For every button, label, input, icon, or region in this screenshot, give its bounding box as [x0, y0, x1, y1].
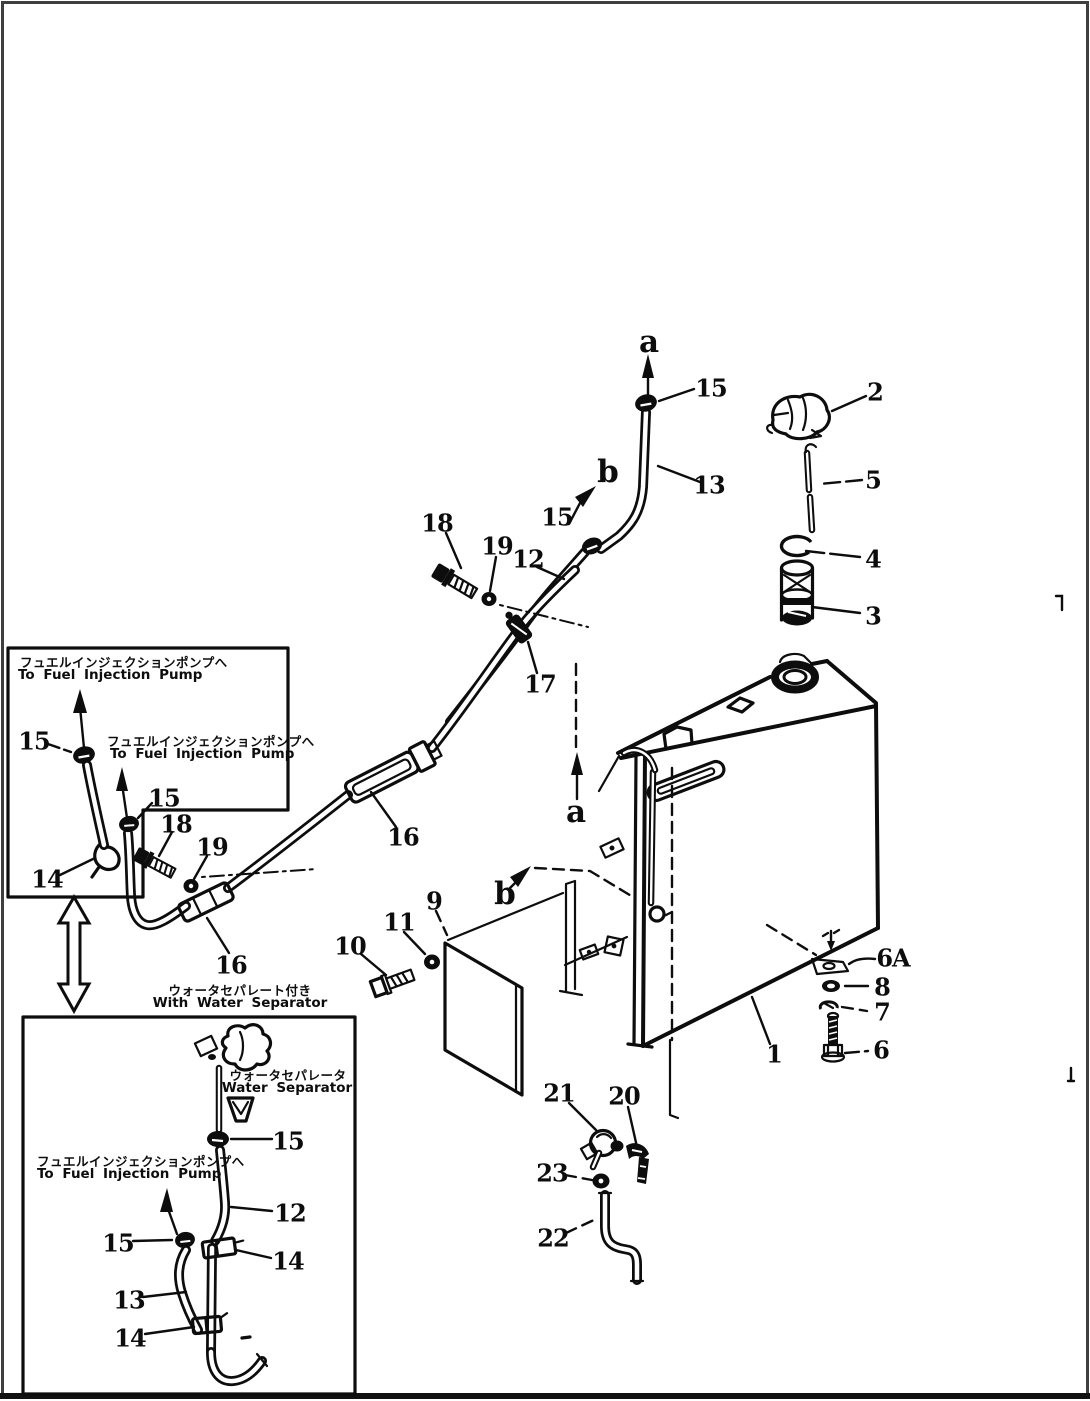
part-label-15: 15	[148, 784, 179, 813]
part-label-21: 21	[543, 1079, 574, 1108]
part-label-20: 20	[608, 1082, 639, 1111]
hose-16-upper	[343, 737, 444, 806]
note-to-pump-3-en: To Fuel Injection Pump	[37, 1166, 221, 1182]
bolt-18	[430, 562, 479, 602]
washer-8	[822, 980, 840, 992]
part-label-2: 2	[867, 378, 883, 407]
diagram-canvas	[0, 0, 1090, 1401]
elbow-14	[92, 845, 119, 877]
filler-cap-group	[767, 394, 829, 625]
part-label-4: 4	[865, 545, 881, 574]
part-label-23: 23	[536, 1159, 567, 1188]
part-label-19: 19	[196, 833, 227, 862]
drain-group	[581, 1131, 649, 1282]
part-label-15: 15	[541, 503, 572, 532]
part-label-22: 22	[537, 1224, 568, 1253]
part-label-13: 13	[693, 471, 724, 500]
gauge-rod	[806, 444, 816, 530]
fuel-tank	[565, 654, 878, 1118]
view-arrow-a-top	[642, 354, 654, 397]
fitting-15	[207, 1131, 229, 1147]
part-label-15: 15	[102, 1229, 133, 1258]
part-label-9: 9	[426, 887, 442, 916]
tube-22	[599, 1193, 643, 1281]
fitting-15	[118, 814, 140, 833]
leader-lines	[48, 389, 875, 1334]
note-separator-en: Water Separator	[222, 1080, 352, 1096]
fitting-15	[633, 392, 659, 414]
nut-19	[482, 592, 497, 606]
strainer	[782, 561, 813, 626]
note-to-pump-2-en: To Fuel Injection Pump	[110, 746, 294, 762]
part-label-14: 14	[272, 1247, 303, 1276]
part-label-b: b	[494, 876, 516, 912]
spring-washer-7	[820, 1002, 837, 1009]
part-label-13: 13	[113, 1286, 144, 1315]
elbow-20	[626, 1143, 649, 1184]
fuel-cap	[767, 394, 829, 438]
part-label-1: 1	[766, 1040, 782, 1069]
part-label-18: 18	[160, 810, 191, 839]
note-with-separator-en: With Water Separator	[153, 995, 328, 1011]
part-label-3: 3	[865, 602, 881, 631]
nut-11	[424, 955, 440, 970]
bolt-10	[370, 966, 416, 998]
part-label-14: 14	[31, 865, 62, 894]
double-arrow	[59, 897, 89, 1011]
part-label-19: 19	[481, 532, 512, 561]
part-label-15: 15	[695, 374, 726, 403]
tank-handle	[646, 759, 726, 803]
snap-ring	[781, 537, 811, 556]
part-label-17: 17	[524, 670, 555, 699]
valve-21	[581, 1131, 624, 1168]
filler-neck	[775, 654, 815, 690]
nut-19	[184, 879, 199, 893]
part-label-a: a	[639, 324, 659, 360]
part-label-12: 12	[274, 1199, 305, 1228]
part-label-11: 11	[383, 908, 414, 937]
page-frame	[0, 3, 1090, 1398]
part-label-a: a	[566, 794, 586, 830]
diagram-page: フュエルインジェクションポンプへ To Fuel Injection Pump …	[0, 0, 1090, 1401]
bolt-6	[822, 1013, 844, 1062]
part-label-7: 7	[874, 998, 890, 1027]
stray-marks	[1056, 596, 1074, 1081]
part-label-15: 15	[18, 727, 49, 756]
plate-6a	[812, 959, 848, 974]
nut-23	[593, 1174, 610, 1189]
bolt-18	[132, 846, 178, 881]
part-label-b: b	[597, 454, 619, 490]
clip	[600, 838, 623, 857]
section-marks	[510, 664, 633, 897]
part-label-5: 5	[865, 466, 881, 495]
part-label-16: 16	[387, 823, 418, 852]
part-label-16: 16	[215, 951, 246, 980]
part-label-14: 14	[114, 1324, 145, 1353]
top-tab	[728, 698, 753, 712]
part-label-12: 12	[512, 545, 543, 574]
part-label-6: 6	[873, 1036, 889, 1065]
part-label-6A: 6A	[876, 944, 909, 973]
note-to-pump-1-en: To Fuel Injection Pump	[18, 667, 202, 683]
part-label-15: 15	[272, 1127, 303, 1156]
part-label-10: 10	[334, 932, 365, 961]
view-arrow-b-top	[569, 486, 596, 524]
part-label-18: 18	[421, 509, 452, 538]
